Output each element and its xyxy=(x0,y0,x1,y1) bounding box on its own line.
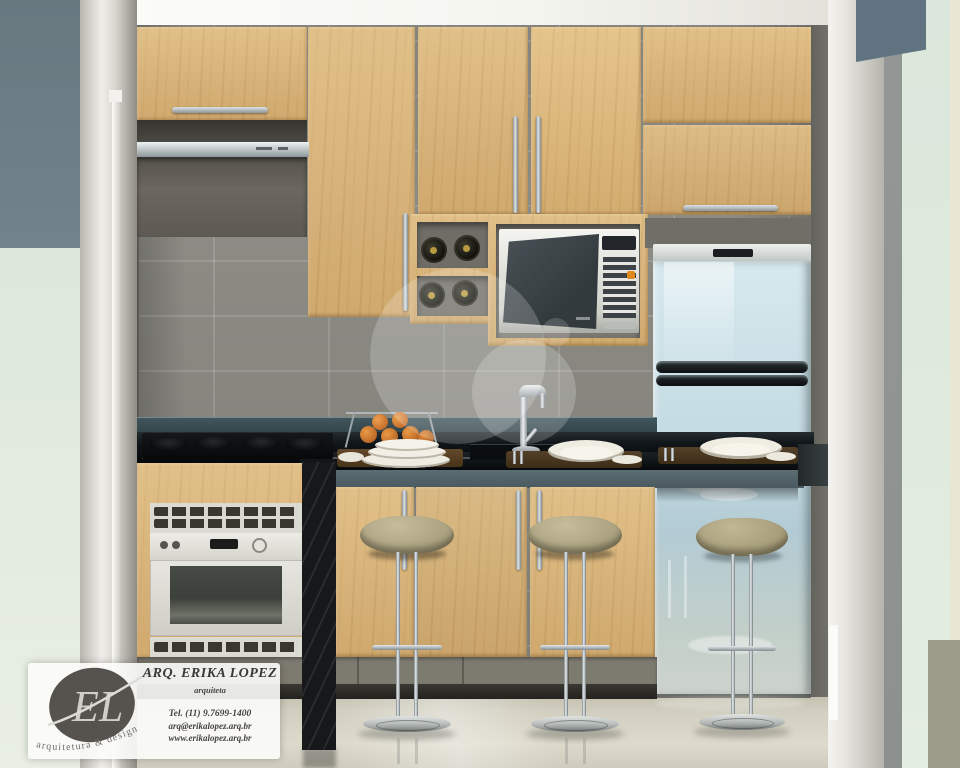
microwave-keypad xyxy=(603,256,636,318)
architect-logo-card: EL arquitetura & design ARQ. ERIKA LOPEZ… xyxy=(28,663,280,759)
left-door-frame-cap xyxy=(109,90,122,102)
right-pillar-highlight xyxy=(829,625,838,720)
side-plate xyxy=(766,452,796,461)
hood-recess xyxy=(137,120,307,143)
microwave-brand-mark xyxy=(576,317,590,320)
upper-cabinet-center-right-handle xyxy=(536,116,541,213)
stool-floor-shadow xyxy=(526,728,624,740)
oven-knob xyxy=(160,541,168,549)
bar-fascia xyxy=(308,470,804,488)
upper-cabinet-center-left-door xyxy=(418,27,528,215)
cooktop-burner xyxy=(286,438,324,451)
upper-cabinet-center-left-handle xyxy=(513,116,518,213)
card-title: ARQ. ERIKA LOPEZ xyxy=(140,666,280,682)
bar-cabinet-handle xyxy=(516,490,521,570)
side-plate xyxy=(612,455,642,464)
ceiling xyxy=(130,0,832,28)
stool-cushion xyxy=(696,518,788,556)
cutlery-fork xyxy=(664,448,667,461)
microwave-start-button xyxy=(627,271,635,279)
fridge-top-vent xyxy=(713,249,753,257)
stool-post xyxy=(582,552,586,724)
fridge-handle-upper xyxy=(656,361,808,373)
plinth-seam xyxy=(357,657,359,684)
stool-floor-shadow xyxy=(694,726,790,738)
cutlery-knife xyxy=(520,451,523,464)
kitchen-render-scene: EL arquitetura & design ARQ. ERIKA LOPEZ… xyxy=(0,0,960,768)
card-phone: Tel. (11) 9.7699-1400 xyxy=(140,709,280,719)
upper-cabinet-left-handle xyxy=(172,107,268,113)
upper-cabinet-right-top-door xyxy=(643,27,818,123)
left-foreground-pillar xyxy=(80,0,137,768)
stool-reflection xyxy=(565,738,568,764)
bar-leg-reflection xyxy=(303,748,336,768)
bar-marble-leg xyxy=(302,462,336,750)
card-subtitle: arquiteta xyxy=(140,685,280,695)
cooktop-burner xyxy=(194,437,232,450)
cutlery-knife xyxy=(671,448,674,461)
left-wall-slate xyxy=(0,0,80,248)
oven-knob xyxy=(172,541,180,549)
cutlery-fork xyxy=(513,451,516,464)
stool-cushion xyxy=(528,516,622,554)
stool-reflection xyxy=(583,738,586,764)
card-email: arq@erikalopez.arq.br xyxy=(140,721,280,731)
salad-plate xyxy=(712,443,770,456)
fridge-sky-reflection xyxy=(664,262,734,372)
stool-post xyxy=(749,554,753,720)
oven-vent-slots xyxy=(154,507,298,516)
stool-footrest xyxy=(540,645,610,650)
hood-canopy xyxy=(137,157,307,237)
card-website: www.erikalopez.arq.br xyxy=(140,733,280,743)
logo-monogram: EL xyxy=(71,682,123,731)
stool-cushion xyxy=(360,516,454,554)
oven-dial xyxy=(252,538,267,553)
bar-end-cap xyxy=(798,444,832,486)
plate-stack-top xyxy=(375,439,439,451)
bar-underside-shadow xyxy=(657,488,798,502)
watermark-circle-small xyxy=(472,340,576,444)
upper-cabinet-right-flap-door xyxy=(643,125,818,215)
microwave-display xyxy=(602,236,636,250)
fridge-reflection-floor xyxy=(688,636,772,654)
stool-reflection xyxy=(415,738,418,764)
upper-cabinet-center-right-door xyxy=(531,27,641,215)
card-text-block: ARQ. ERIKA LOPEZ arquiteta Tel. (11) 9.7… xyxy=(140,663,280,759)
microwave-handle-bar xyxy=(604,322,636,329)
stool-reflection xyxy=(397,738,400,764)
wine-bottle-label xyxy=(430,247,437,254)
oven-door-window xyxy=(170,566,282,624)
stool-footrest xyxy=(372,645,442,650)
bar-cabinet-door xyxy=(416,487,527,657)
bar-cabinet-door xyxy=(530,487,655,657)
cooktop-burner xyxy=(242,437,280,450)
stool-post xyxy=(396,552,400,724)
oven-vent-slots xyxy=(154,519,298,528)
wine-bottle-label xyxy=(463,245,470,252)
fridge-reflection-glass-stem xyxy=(668,560,671,618)
tall-cabinet-door xyxy=(308,27,415,317)
stool-floor-shadow xyxy=(358,728,456,740)
salad-plate xyxy=(560,446,614,460)
stool-footrest xyxy=(708,646,776,651)
fridge-reflection-glass-stem xyxy=(684,556,687,618)
upper-cabinet-right-flap-handle xyxy=(683,205,778,211)
watermark-circle-tail xyxy=(542,318,570,346)
stool-post xyxy=(564,552,568,724)
stool-post xyxy=(731,554,735,720)
orange-fruit xyxy=(360,426,377,443)
hood-brand-mark xyxy=(256,147,272,150)
right-wall-gray-band xyxy=(884,0,902,768)
floor-highlight xyxy=(654,696,804,710)
hood-model-mark xyxy=(278,147,288,150)
stool-post xyxy=(414,552,418,724)
cooktop-burner xyxy=(150,438,188,451)
bottom-right-khaki-block xyxy=(928,640,960,768)
plinth-seam xyxy=(462,657,464,684)
small-bowl xyxy=(338,452,364,462)
oven-vent-slots xyxy=(154,642,298,652)
oven-display xyxy=(210,539,238,549)
fridge-handle-lower xyxy=(656,375,808,386)
